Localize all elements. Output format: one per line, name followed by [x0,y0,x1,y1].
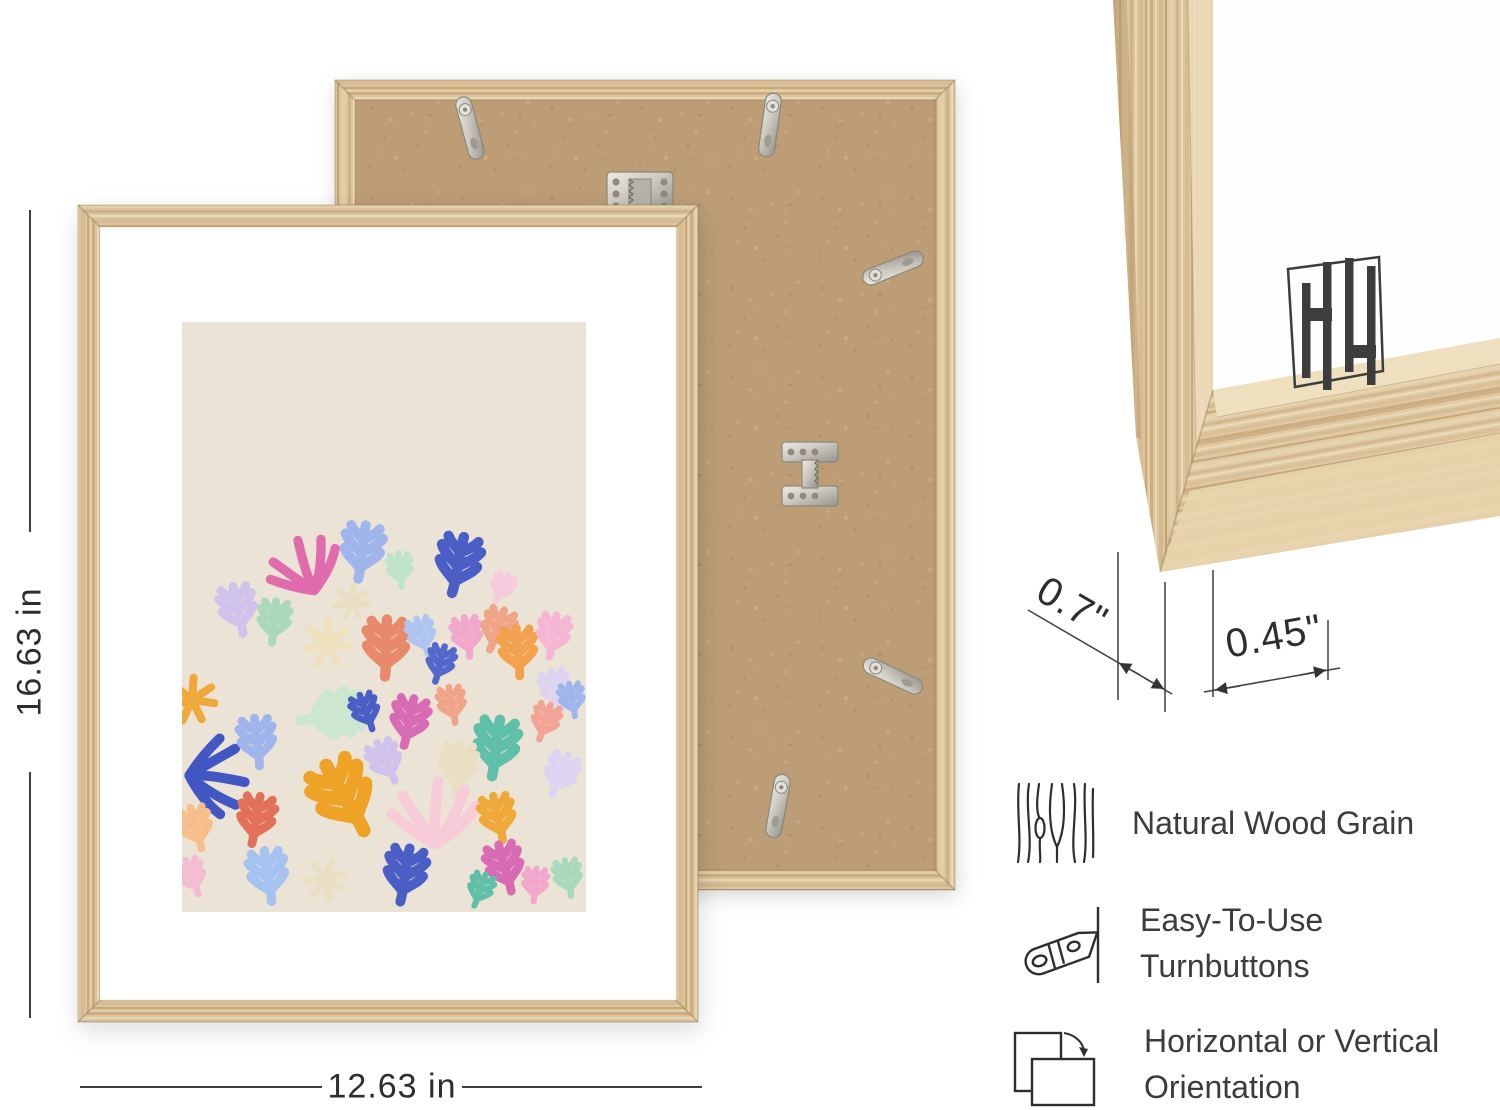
width-dimension-line-right [462,1086,702,1088]
height-dimension-line-top [29,210,31,532]
feature-label: Easy-To-Use Turnbuttons [1140,897,1485,990]
glass-area [1213,0,1500,390]
feature-natural-wood-grain: Natural Wood Grain [1012,778,1414,868]
height-dimension-label: 16.63 in [11,588,50,717]
feature-turnbuttons: Easy-To-Use Turnbuttons [1012,898,1485,988]
width-dimension-line-left [80,1086,322,1088]
feature-label: Natural Wood Grain [1132,800,1414,846]
orientation-icon [1012,1019,1108,1109]
turnbutton-icon [1012,899,1104,987]
height-dimension-line-bottom [29,772,31,1018]
frame-front-view [78,205,698,1022]
product-infographic: 16.63 in 12.63 in 0.7" 0.45" [0,0,1500,1110]
feature-label: Horizontal or Vertical Orientation [1144,1018,1489,1110]
feature-orientation: Horizontal or Vertical Orientation [1012,1018,1489,1110]
wood-grain-icon [1012,781,1096,865]
width-dimension-label: 12.63 in [328,1068,457,1107]
